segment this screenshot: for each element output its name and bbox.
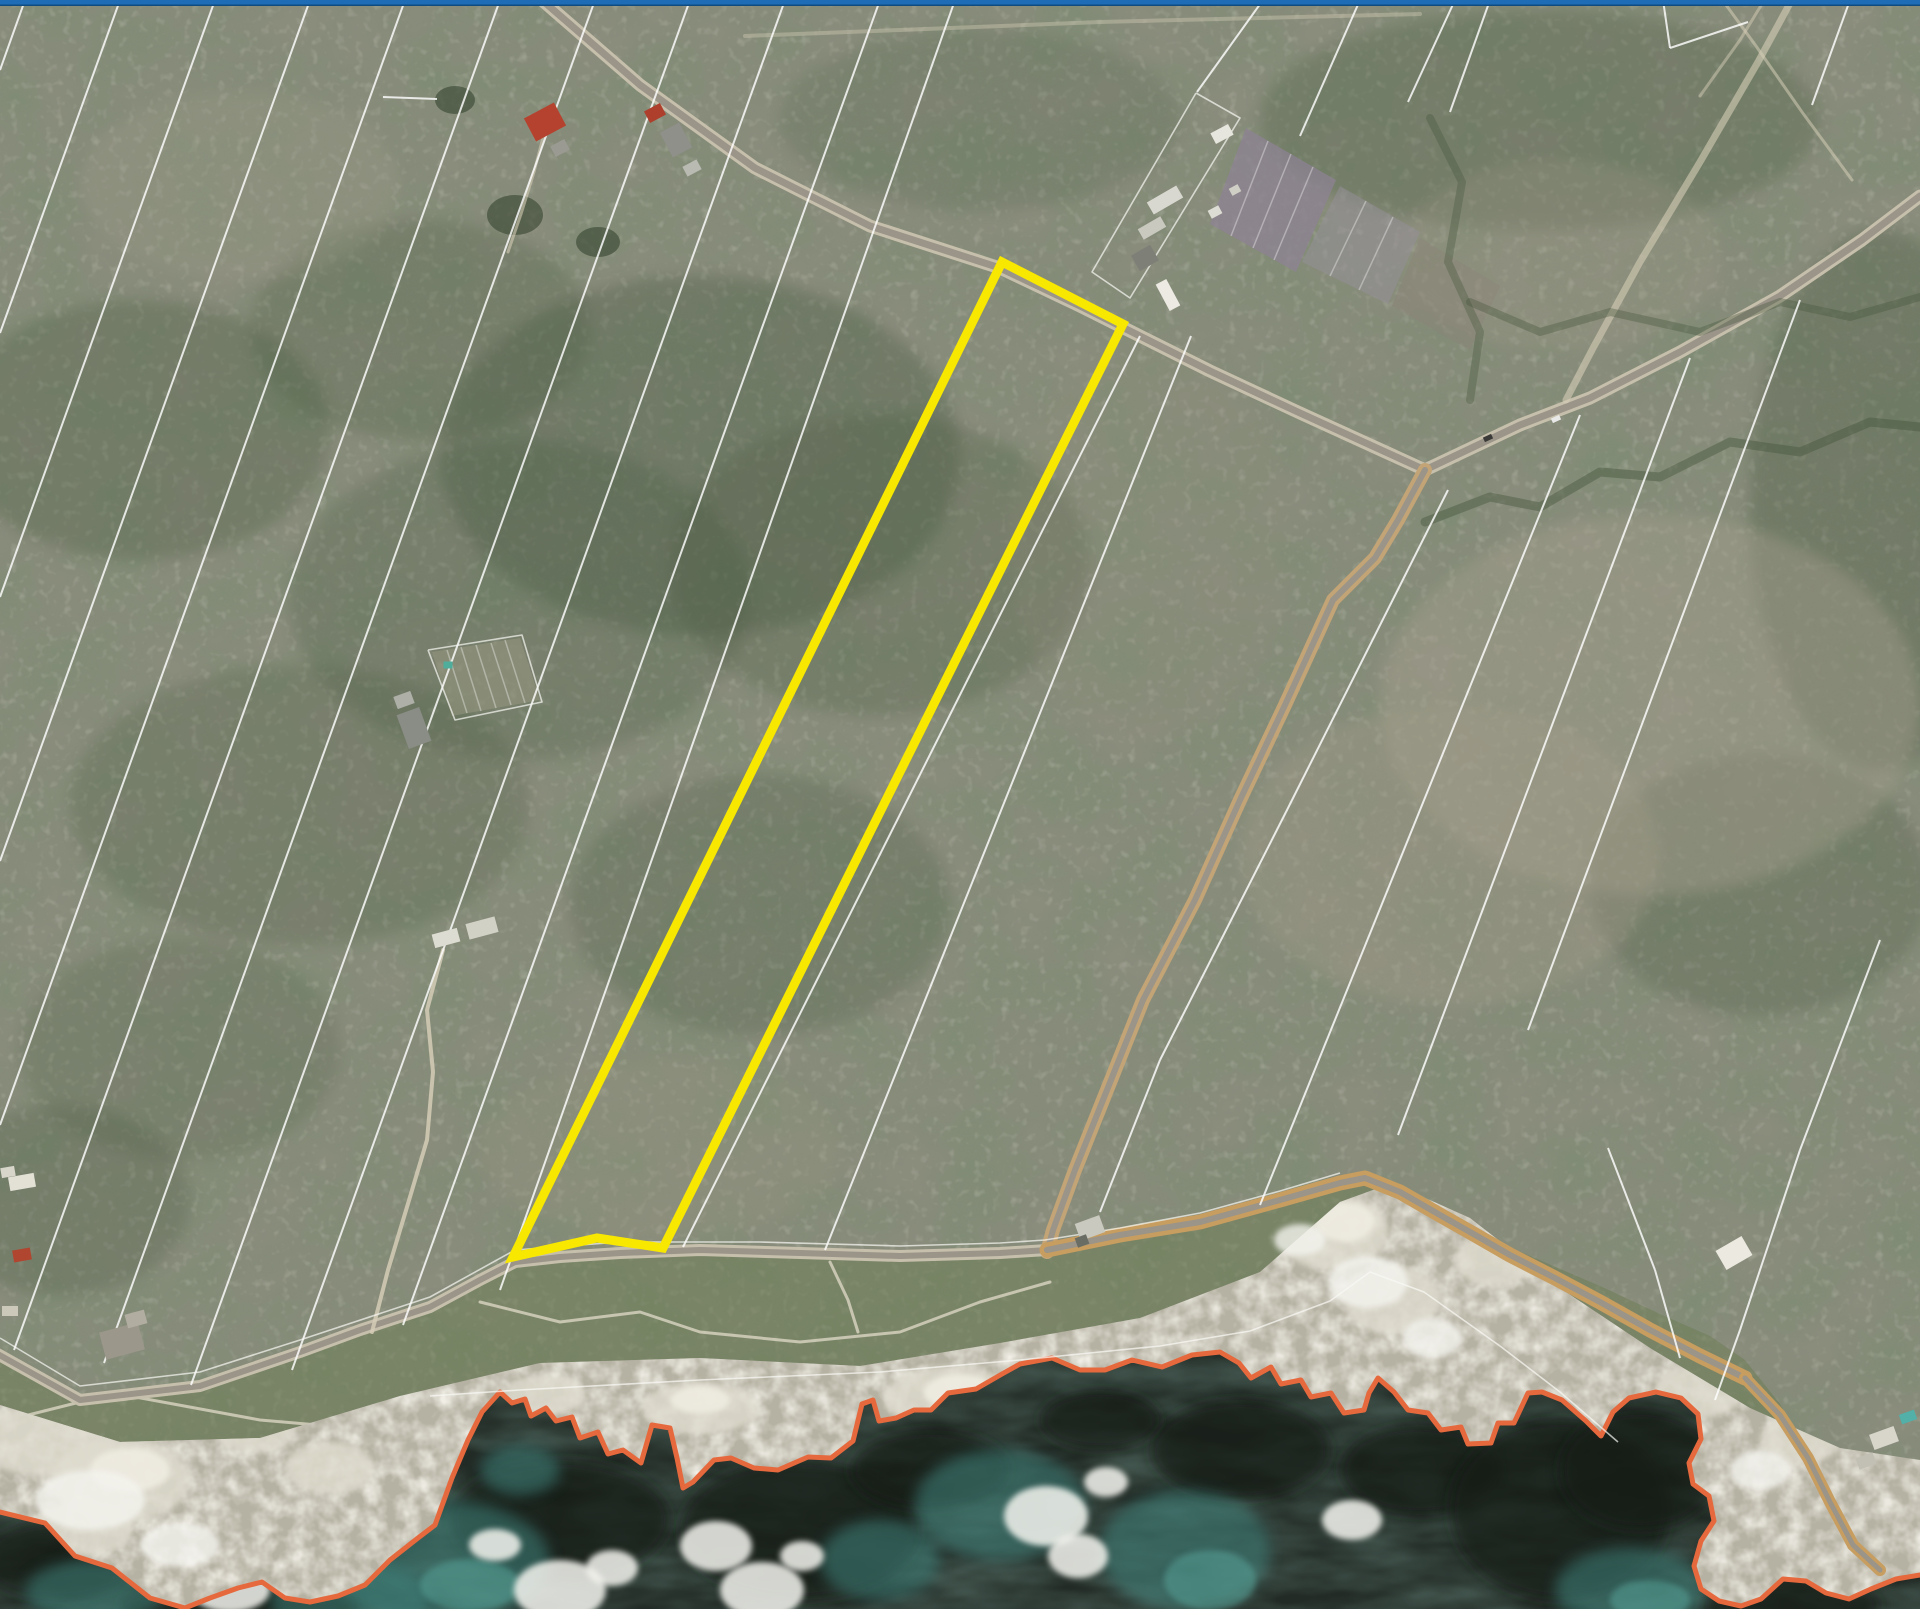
map-viewport [0,0,1920,1609]
aerial-map-canvas[interactable] [0,0,1920,1609]
window-top-bar [0,0,1920,6]
